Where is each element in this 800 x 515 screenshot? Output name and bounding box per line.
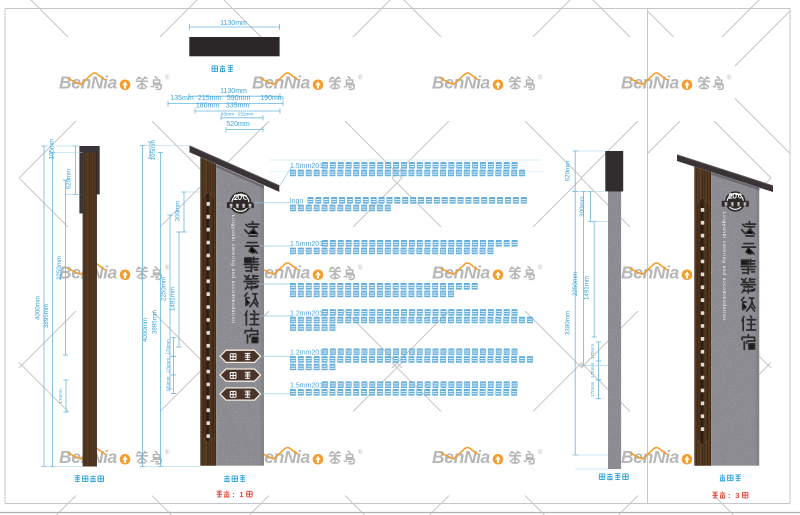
svg-text:170mm: 170mm xyxy=(166,358,171,373)
svg-text:105mm: 105mm xyxy=(150,140,157,161)
svg-text:1130mm: 1130mm xyxy=(220,20,247,27)
svg-text:®: ® xyxy=(165,449,170,456)
svg-text:4000mm: 4000mm xyxy=(142,318,149,342)
svg-text:215mm: 215mm xyxy=(198,95,222,102)
svg-text:1.5mm201: 1.5mm201 xyxy=(290,383,323,390)
svg-text:®: ® xyxy=(727,75,732,82)
svg-text:1.5mm201: 1.5mm201 xyxy=(290,241,323,248)
svg-text:1491mm: 1491mm xyxy=(584,276,591,300)
svg-text:300mm: 300mm xyxy=(579,196,586,217)
svg-text:180mm: 180mm xyxy=(196,103,220,110)
svg-text:1130mm: 1130mm xyxy=(220,88,247,95)
svg-text:3895mm: 3895mm xyxy=(43,304,50,328)
svg-text:®: ® xyxy=(358,449,363,456)
svg-text:®: ® xyxy=(538,265,543,272)
svg-text:Lingyunbi catering and accommo: Lingyunbi catering and accommodation xyxy=(721,212,727,321)
svg-text:170mm: 170mm xyxy=(166,376,171,391)
svg-text:®: ® xyxy=(165,265,170,272)
svg-text:190mm: 190mm xyxy=(260,95,284,102)
svg-text:170mm: 170mm xyxy=(590,381,595,396)
svg-text::: : xyxy=(728,491,731,500)
svg-text:170mm: 170mm xyxy=(166,339,171,354)
svg-text::: : xyxy=(232,490,235,499)
svg-text:logo: logo xyxy=(290,198,303,205)
svg-text:170mm: 170mm xyxy=(58,388,63,403)
svg-text:BenNia: BenNia xyxy=(621,263,680,283)
svg-text:590mm: 590mm xyxy=(227,95,251,102)
svg-text:2250mm: 2250mm xyxy=(572,272,579,296)
svg-text:2250mm: 2250mm xyxy=(161,277,168,301)
svg-text:®: ® xyxy=(358,75,363,82)
svg-text:1.2mm201: 1.2mm201 xyxy=(290,350,323,357)
svg-text:93mm: 93mm xyxy=(221,112,234,118)
svg-text:170mm: 170mm xyxy=(590,363,595,378)
svg-text:®: ® xyxy=(538,75,543,82)
svg-text:1491mm: 1491mm xyxy=(170,287,177,311)
svg-text:BenNia: BenNia xyxy=(59,73,118,93)
svg-text:335mm: 335mm xyxy=(226,103,250,110)
svg-text:170mm: 170mm xyxy=(590,344,595,359)
svg-text:®: ® xyxy=(165,75,170,82)
svg-text:1: 1 xyxy=(239,490,243,499)
svg-text:3: 3 xyxy=(735,491,739,500)
svg-text:1.2mm201: 1.2mm201 xyxy=(290,310,323,317)
svg-text:Lingyunbi catering and accommo: Lingyunbi catering and accommodation xyxy=(230,215,236,324)
svg-text:620mm: 620mm xyxy=(565,161,572,182)
svg-text:3380mm: 3380mm xyxy=(565,311,572,335)
svg-text:520mm: 520mm xyxy=(226,121,250,128)
svg-text:300mm: 300mm xyxy=(175,201,182,222)
svg-text:BenNia: BenNia xyxy=(621,73,680,93)
svg-text:BenNia: BenNia xyxy=(432,263,491,283)
svg-text:232mm: 232mm xyxy=(238,112,254,118)
svg-text:105mm: 105mm xyxy=(49,139,56,160)
svg-text:1.5mm201: 1.5mm201 xyxy=(290,163,323,170)
svg-text:2250mm: 2250mm xyxy=(56,256,63,280)
svg-text:BenNia: BenNia xyxy=(621,447,680,467)
svg-text:BenNia: BenNia xyxy=(252,73,311,93)
svg-text:4000mm: 4000mm xyxy=(35,296,42,320)
svg-text:®: ® xyxy=(538,449,543,456)
svg-text:135mm: 135mm xyxy=(170,95,194,102)
svg-text:BenNia: BenNia xyxy=(432,73,491,93)
svg-text:620mm: 620mm xyxy=(66,169,73,190)
svg-text:BenNia: BenNia xyxy=(432,447,491,467)
svg-text:®: ® xyxy=(358,265,363,272)
svg-text:3895mm: 3895mm xyxy=(152,310,159,334)
